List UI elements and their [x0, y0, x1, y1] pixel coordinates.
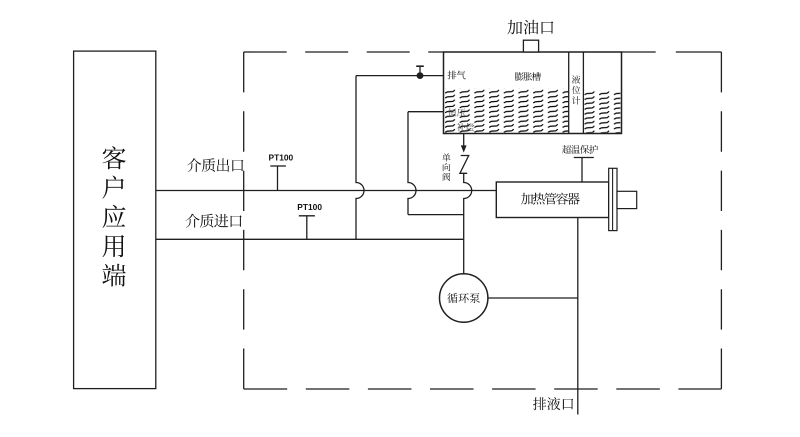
- svg-text:PT100: PT100: [269, 152, 294, 162]
- svg-text:PT100: PT100: [297, 202, 322, 212]
